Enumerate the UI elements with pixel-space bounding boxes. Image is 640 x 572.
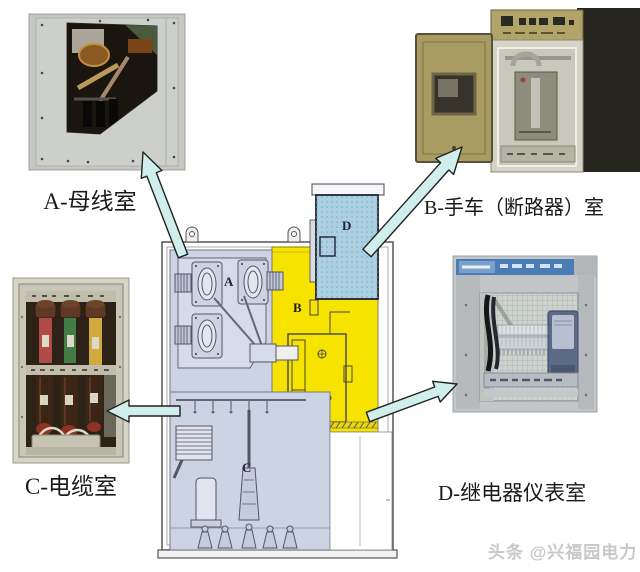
compartment-a-busbar: A bbox=[170, 250, 298, 392]
relay-device bbox=[548, 311, 578, 375]
caption-busbar-room: A-母线室 bbox=[10, 182, 170, 216]
caption-cable-room: C-电缆室 bbox=[12, 467, 130, 501]
figure-canvas: A-母线室 B-手车（断路器）室 C-电缆室 D-继电器仪表室 bbox=[0, 0, 640, 572]
diagram-letter-b: B bbox=[293, 300, 302, 315]
relay-photo-graphic bbox=[452, 255, 598, 413]
photo-cable-room bbox=[12, 277, 130, 464]
cabinet-body bbox=[158, 227, 397, 558]
cable-cone-icons bbox=[198, 524, 297, 548]
compartment-b-breaker: B bbox=[272, 247, 378, 432]
lower-right-bay bbox=[330, 432, 392, 550]
compartment-d-relay: D bbox=[310, 184, 384, 299]
busbar-photo-graphic bbox=[28, 13, 186, 171]
compartment-c-cable: C bbox=[170, 392, 330, 550]
diagram-letter-a: A bbox=[224, 274, 234, 289]
photo-breaker-room bbox=[413, 8, 640, 178]
open-cabinet-door bbox=[416, 34, 492, 162]
caption-relay-room: D-继电器仪表室 bbox=[438, 477, 586, 507]
lifting-lug-icon bbox=[186, 227, 300, 242]
breaker-photo-graphic bbox=[413, 8, 640, 178]
phase-busbars bbox=[35, 300, 106, 374]
arrow-d-icon bbox=[366, 381, 457, 421]
photo-relay-room bbox=[452, 255, 598, 413]
photo-busbar-room bbox=[28, 13, 186, 171]
caption-breaker-room: B-手车（断路器）室 bbox=[424, 191, 604, 220]
cable-photo-graphic bbox=[12, 277, 130, 464]
diagram-letter-c: C bbox=[242, 460, 251, 475]
watermark-text: 头条 @兴福园电力 bbox=[488, 538, 637, 563]
diagram-letter-d: D bbox=[342, 218, 351, 233]
